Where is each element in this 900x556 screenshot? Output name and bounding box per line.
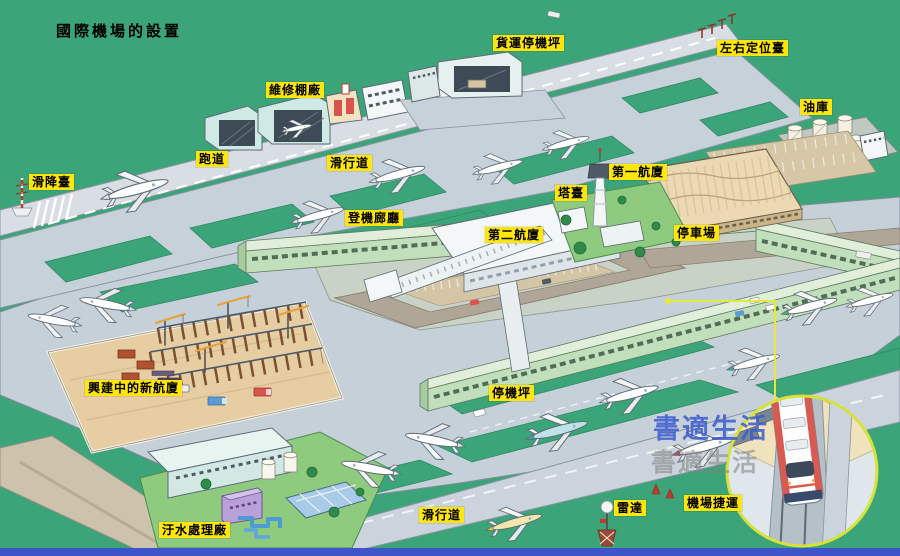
label-boarding-corridor: 登機廊廳: [345, 210, 403, 226]
airport-diagram: 國際機場的設置 維修棚廠 貨運停機坪 左右定位臺 油庫 跑道 滑行道 滑降臺 第…: [0, 0, 900, 556]
label-runway: 跑道: [196, 151, 228, 167]
page-title: 國際機場的設置: [56, 20, 182, 41]
watermark-gray: 書適生活: [651, 443, 759, 479]
label-sewage-plant: 汙水處理廠: [159, 522, 230, 538]
bottom-blue-strip: [0, 548, 900, 556]
label-apron: 停機坪: [489, 385, 534, 401]
airport-diagram-illustration: [0, 0, 900, 556]
label-control-tower: 塔臺: [555, 185, 587, 201]
label-localizer: 左右定位臺: [717, 40, 788, 56]
label-taxiway-bottom: 滑行道: [419, 507, 464, 523]
watermark-blue: 書適生活: [653, 407, 769, 446]
label-terminal-2: 第二航廈: [485, 227, 543, 243]
label-taxiway-top: 滑行道: [327, 155, 372, 171]
label-new-terminal-construction: 興建中的新航廈: [85, 380, 182, 396]
label-fuel-depot: 油庫: [800, 99, 832, 115]
label-glide-slope: 滑降臺: [29, 174, 74, 190]
label-maintenance-hangar: 維修棚廠: [266, 82, 324, 98]
label-cargo-apron: 貨運停機坪: [493, 35, 564, 51]
label-airport-mrt: 機場捷運: [684, 495, 742, 511]
label-parking-lot: 停車場: [674, 225, 719, 241]
label-radar: 雷達: [614, 500, 646, 516]
label-terminal-1: 第一航廈: [609, 164, 667, 180]
